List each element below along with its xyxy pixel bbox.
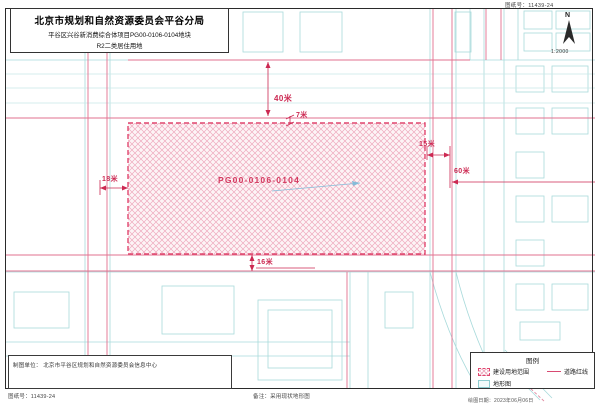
sheet-number-top: 图纸号：11439-24	[505, 1, 553, 9]
legend-item-label: 建设用地范围	[493, 367, 529, 376]
hatch-swatch-icon	[478, 368, 490, 376]
drafting-unit-text: 制图单位： 北京市平谷区规划和自然资源委员会信息中心	[13, 361, 157, 369]
footer-note: 备注：采用现状地形图	[253, 392, 310, 400]
dimension-top-road: 40米	[274, 93, 292, 104]
landuse-subtitle: R2二类居住用地	[11, 41, 228, 50]
legend-item-label: 地形图	[493, 379, 511, 388]
dimension-right-road: 15米	[419, 139, 435, 149]
legend-item-parcel: 建设用地范围	[478, 367, 529, 376]
legend-item-redline: 道路红线	[547, 367, 588, 376]
redline-swatch-icon	[547, 371, 561, 372]
dimension-left-road: 18米	[102, 174, 118, 184]
legend-item-label: 道路红线	[564, 367, 588, 376]
sheet-number-bottom: 图纸号：11439-24	[8, 392, 55, 400]
parcel-code-label: PG00-0106-0104	[218, 175, 300, 185]
dimension-bottom-road: 16米	[257, 257, 273, 267]
dimension-right-offset: 60米	[454, 166, 470, 176]
legend: 图例 建设用地范围 道路红线 地形图	[470, 352, 595, 389]
topo-swatch-icon	[478, 380, 490, 388]
legend-title: 图例	[471, 355, 594, 365]
title-block: 北京市规划和自然资源委员会平谷分局 平谷区兴谷新消费综合体项目PG00-0106…	[10, 8, 229, 53]
agency-title: 北京市规划和自然资源委员会平谷分局	[11, 13, 228, 27]
drafting-info-box: 制图单位： 北京市平谷区规划和自然资源委员会信息中心	[8, 355, 232, 389]
legend-item-topo: 地形图	[478, 379, 511, 388]
project-subtitle: 平谷区兴谷新消费综合体项目PG00-0106-0104地块	[11, 30, 228, 39]
planning-map-sheet: 图纸号：11439-24 北京市规划和自然资源委员会平谷分局 平谷区兴谷新消费综…	[0, 0, 600, 407]
sheet-border	[5, 8, 593, 389]
footer-date: 绘图日期：2023年06月06日	[468, 397, 533, 404]
north-label: N	[565, 12, 570, 19]
dimension-top-strip: 7米	[296, 110, 308, 120]
map-scale: 1:2000	[551, 49, 569, 55]
